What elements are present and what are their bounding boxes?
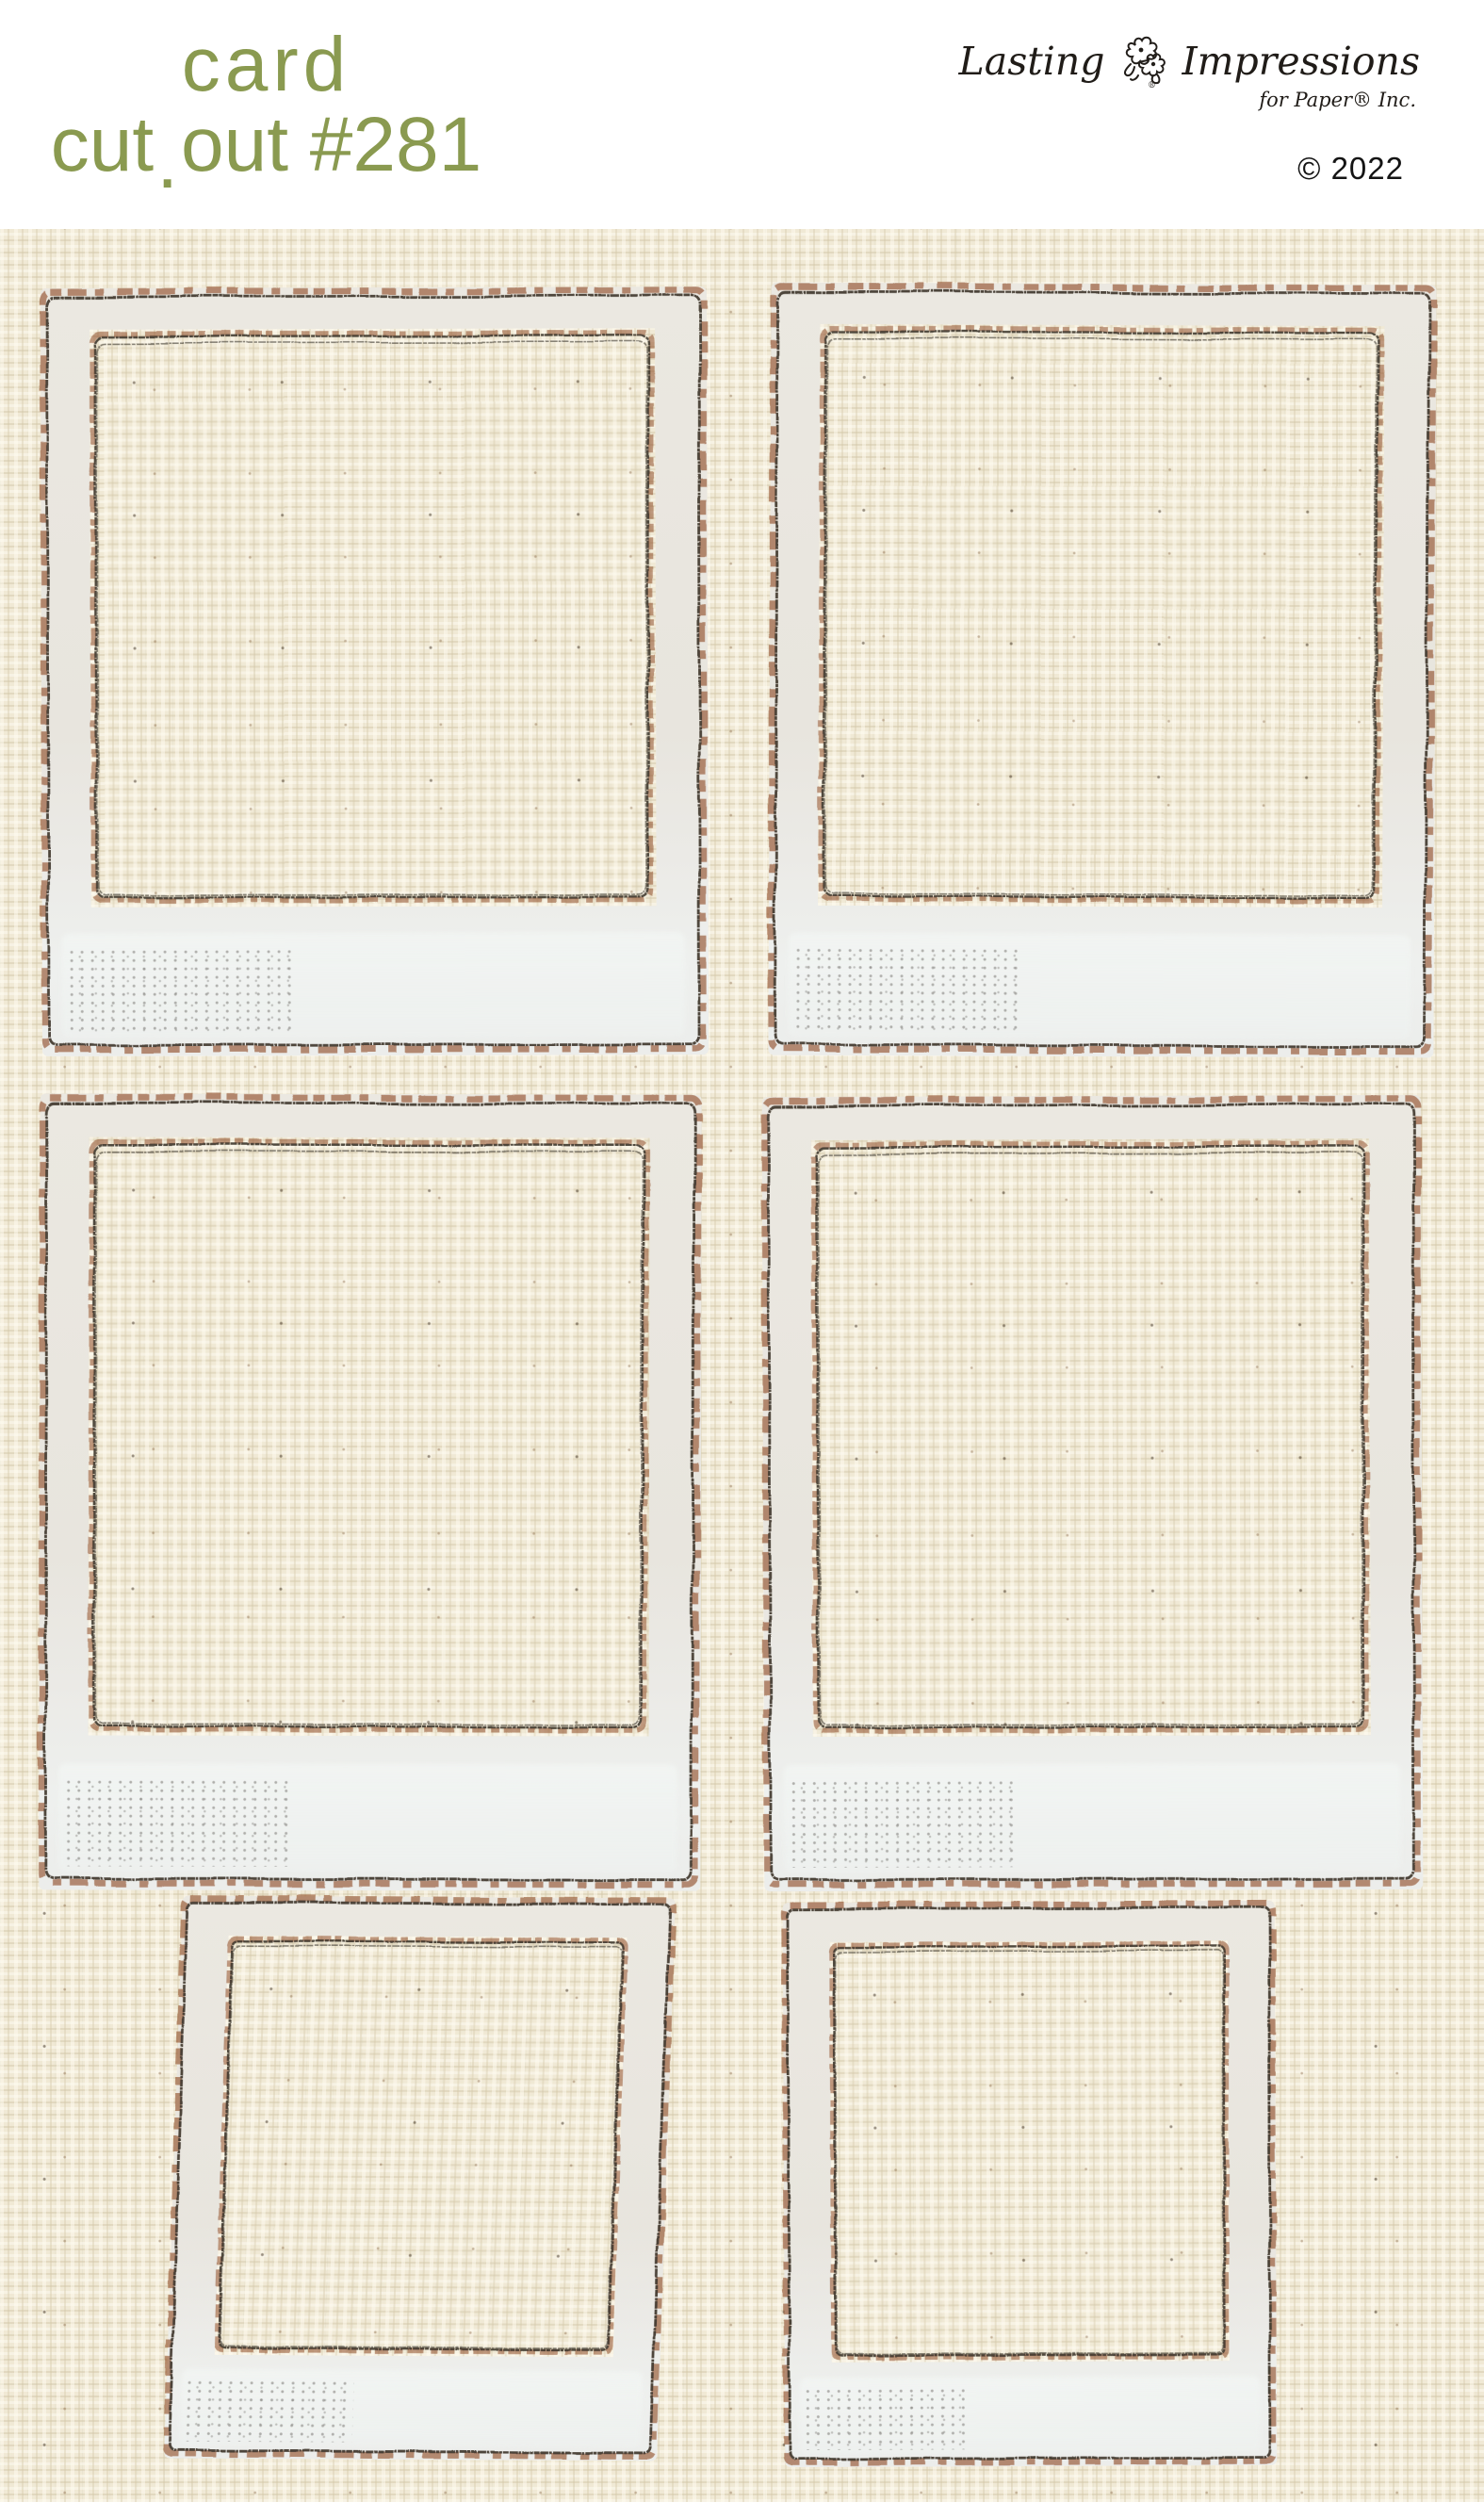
brand-word-impressions: Impressions (1182, 39, 1420, 84)
title-line-2: cut.out #281 (28, 105, 504, 185)
outer-sketch-border (762, 1095, 1424, 1891)
polaroid-frame-f1 (41, 286, 709, 1056)
polaroid-frame-f5 (164, 1896, 676, 2461)
polaroid-frame-f4 (762, 1095, 1424, 1891)
polaroid-frame-f3 (39, 1093, 701, 1890)
outer-sketch-border (768, 283, 1436, 1058)
registered-mark: ® (1148, 81, 1156, 90)
copyright-text: © 2022 (1297, 151, 1404, 187)
flower-icon: ® (1112, 32, 1174, 90)
brand-logo: Lasting ® Impressions for Paper® Inc. (959, 32, 1420, 111)
title-dot: . (156, 122, 178, 202)
brand-word-lasting: Lasting (959, 39, 1105, 84)
outer-sketch-border (41, 286, 709, 1056)
outer-sketch-border (39, 1093, 701, 1890)
outer-sketch-border (164, 1896, 676, 2461)
title-word-cut: cut (51, 102, 154, 188)
polaroid-frame-f2 (768, 283, 1436, 1058)
brand-tagline: for Paper® Inc. (959, 89, 1420, 111)
outer-sketch-border (783, 1901, 1278, 2467)
canvas-sheet (0, 229, 1484, 2502)
polaroid-frame-f6 (783, 1901, 1278, 2467)
title-word-rest: out #281 (181, 102, 481, 188)
header: card cut.out #281 Lasting ® Impressions … (0, 0, 1484, 229)
page-title: card cut.out #281 (28, 25, 504, 186)
title-line-1: card (28, 25, 504, 105)
